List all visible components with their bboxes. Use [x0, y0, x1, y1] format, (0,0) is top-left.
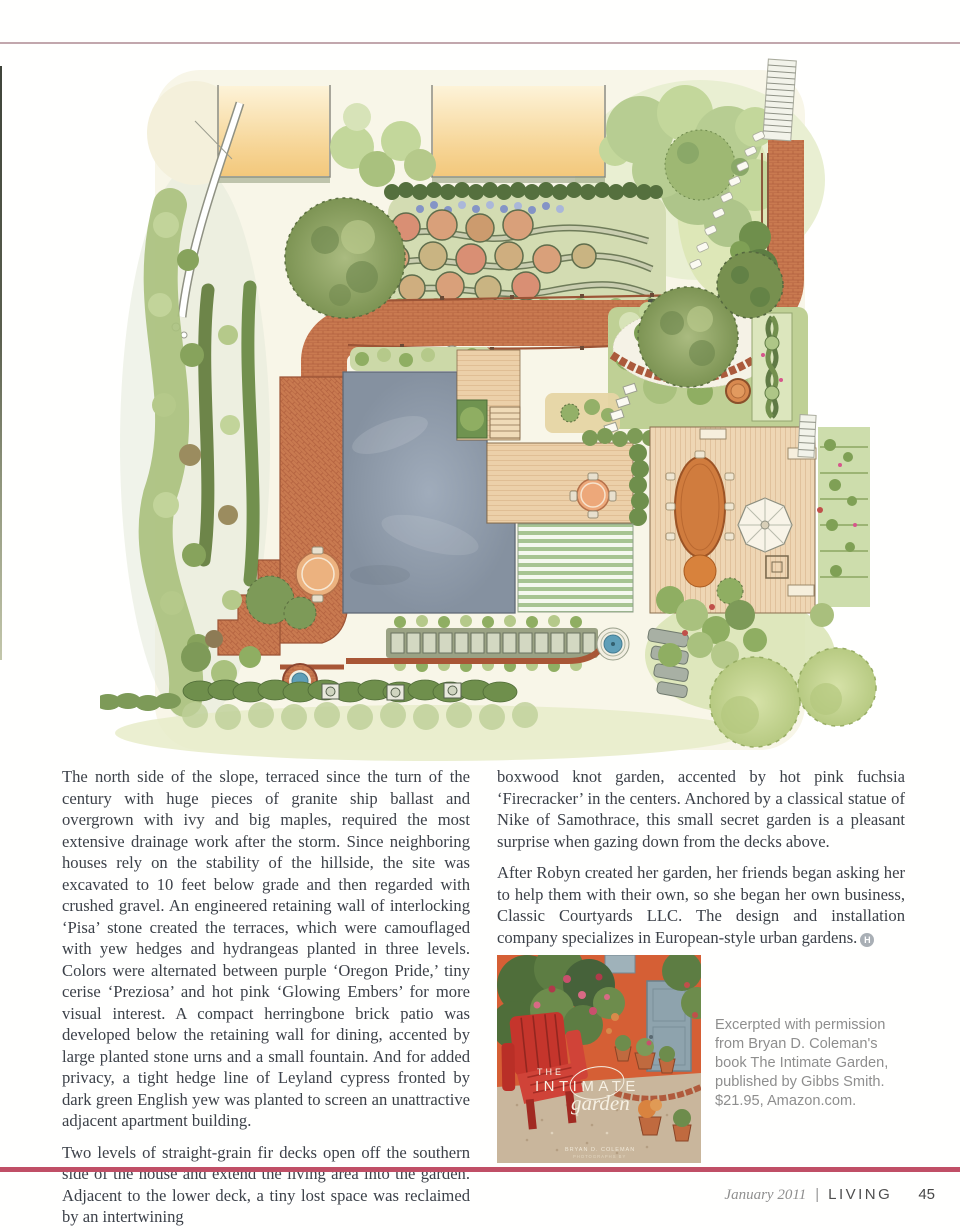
maple-tree — [285, 198, 405, 318]
striped-lawn — [518, 524, 633, 612]
cover-author: BRYAN D. COLEMAN — [565, 1147, 635, 1153]
article-left-column: The north side of the slope, terraced si… — [62, 766, 470, 1230]
footer-separator: | — [815, 1186, 819, 1203]
bottom-rule — [0, 1167, 960, 1172]
caption-line: Excerpted with permission — [715, 1016, 915, 1035]
maple-tree — [717, 252, 783, 318]
page-footer: January 2011 | LIVING 45 — [724, 1186, 935, 1204]
deck-side-stairs — [798, 415, 816, 458]
cover-credit: PHOTOGRAPHS BY — [573, 1154, 626, 1159]
caption-line: published by Gibbs Smith. — [715, 1073, 915, 1092]
caption-line: $21.95, Amazon.com. — [715, 1092, 915, 1111]
article-right-column: boxwood knot garden, accented by hot pin… — [497, 766, 905, 958]
footer-page-number: 45 — [918, 1186, 935, 1203]
deck-bench — [788, 585, 814, 596]
magazine-page: The north side of the slope, terraced si… — [0, 0, 960, 1230]
page-edge-bleed — [0, 66, 2, 660]
book-cover: THE INTIMATE garden BRYAN D. COLEMAN PHO… — [497, 955, 701, 1163]
caption-line: book The Intimate Garden, — [715, 1054, 915, 1073]
paragraph: boxwood knot garden, accented by hot pin… — [497, 766, 905, 852]
footer-issue-date: January 2011 — [724, 1187, 806, 1204]
stone-urn — [726, 379, 750, 403]
cover-kicker: THE — [537, 1067, 564, 1077]
top-right-stairs — [763, 59, 797, 141]
gazebo — [738, 498, 792, 552]
lower-deck — [650, 427, 816, 613]
orange-maple — [684, 555, 716, 587]
book-caption: Excerpted with permission from Bryan D. … — [715, 1016, 915, 1111]
hot-tub-right — [597, 628, 629, 660]
paragraph: The north side of the slope, terraced si… — [62, 766, 470, 1132]
end-of-article-mark: H — [860, 933, 874, 947]
top-rule — [0, 42, 960, 44]
cover-script-title: garden — [571, 1091, 630, 1115]
footer-magazine-name: LIVING — [828, 1186, 892, 1203]
paragraph: After Robyn created her garden, her frie… — [497, 862, 905, 948]
garden-plan-illustration — [100, 55, 890, 765]
caption-line: from Bryan D. Coleman's — [715, 1035, 915, 1054]
knot-garden — [752, 313, 792, 421]
paragraph: Two levels of straight-grain fir decks o… — [62, 1142, 470, 1228]
deck-steps — [490, 407, 520, 438]
deck-divider-hedge — [629, 444, 649, 526]
